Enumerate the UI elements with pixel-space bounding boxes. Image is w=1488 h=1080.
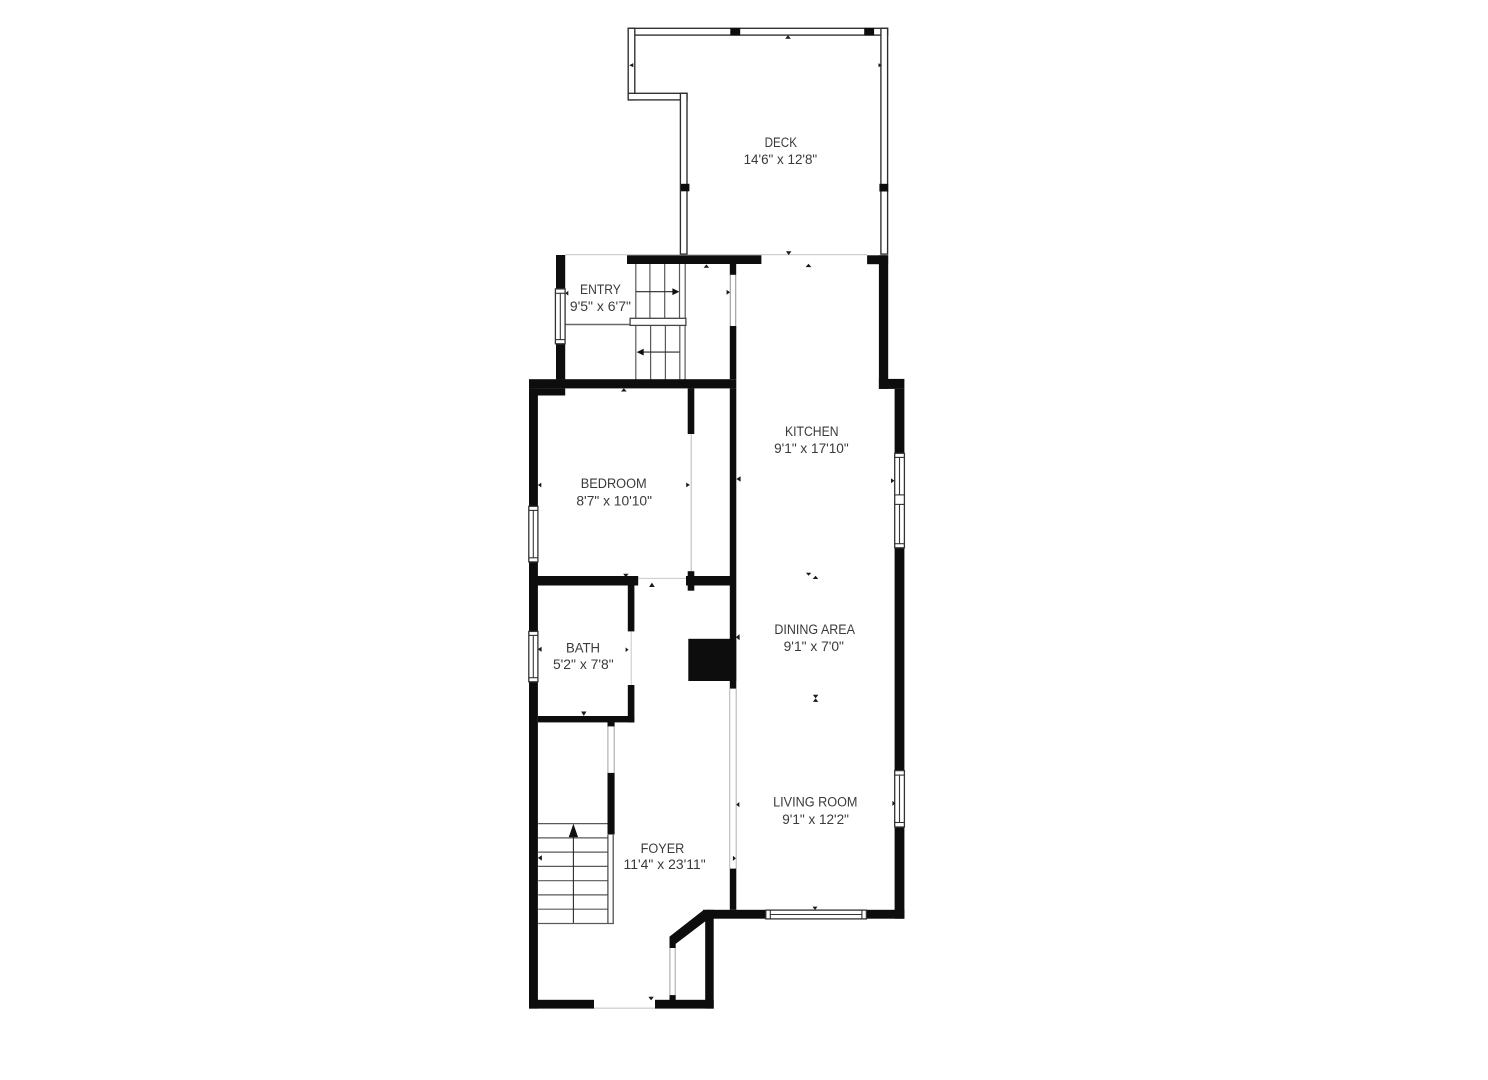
svg-text:ENTRY: ENTRY [580,282,621,298]
svg-text:5'2" x 7'8": 5'2" x 7'8" [553,657,614,673]
svg-text:14'6" x 12'8": 14'6" x 12'8" [744,152,818,168]
svg-text:BEDROOM: BEDROOM [581,476,647,492]
svg-text:8'7" x 10'10": 8'7" x 10'10" [576,493,652,509]
svg-text:KITCHEN: KITCHEN [785,424,839,440]
svg-text:9'1" x 12'2": 9'1" x 12'2" [782,812,849,828]
svg-text:BATH: BATH [566,641,600,657]
svg-text:LIVING ROOM: LIVING ROOM [773,795,857,811]
svg-text:11'4" x 23'11": 11'4" x 23'11" [624,857,706,873]
svg-text:DINING AREA: DINING AREA [774,622,855,638]
svg-text:9'5" x 6'7": 9'5" x 6'7" [570,299,631,315]
svg-text:DECK: DECK [765,135,798,151]
svg-text:9'1" x 7'0": 9'1" x 7'0" [784,639,844,655]
svg-text:9'1" x 17'10": 9'1" x 17'10" [774,441,849,457]
svg-text:FOYER: FOYER [641,841,685,857]
